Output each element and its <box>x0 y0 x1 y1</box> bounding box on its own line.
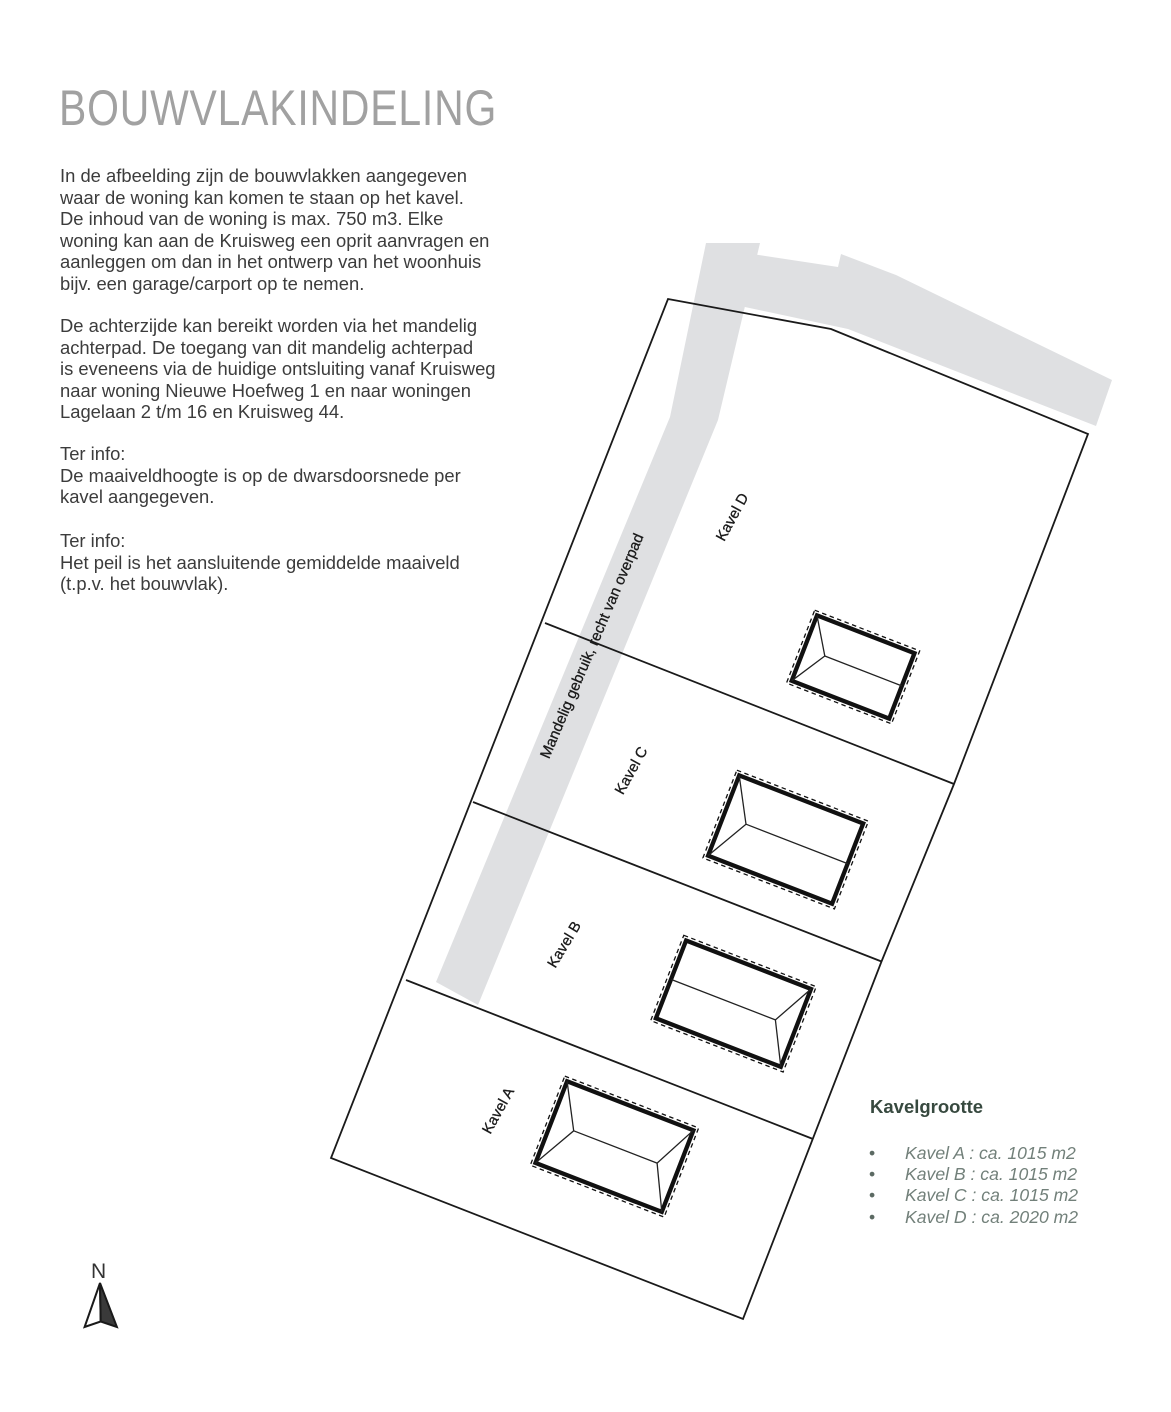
svg-text:Kavel D: Kavel D <box>714 491 753 544</box>
svg-text:Kavel A: Kavel A <box>480 1085 518 1137</box>
svg-text:N: N <box>91 1260 106 1283</box>
svg-text:Kavel C: Kavel C <box>612 744 651 797</box>
svg-text:Mandelig gebruik, recht van ov: Mandelig gebruik, recht van overpad <box>537 531 647 761</box>
svg-text:Kavel B: Kavel B <box>545 919 585 971</box>
